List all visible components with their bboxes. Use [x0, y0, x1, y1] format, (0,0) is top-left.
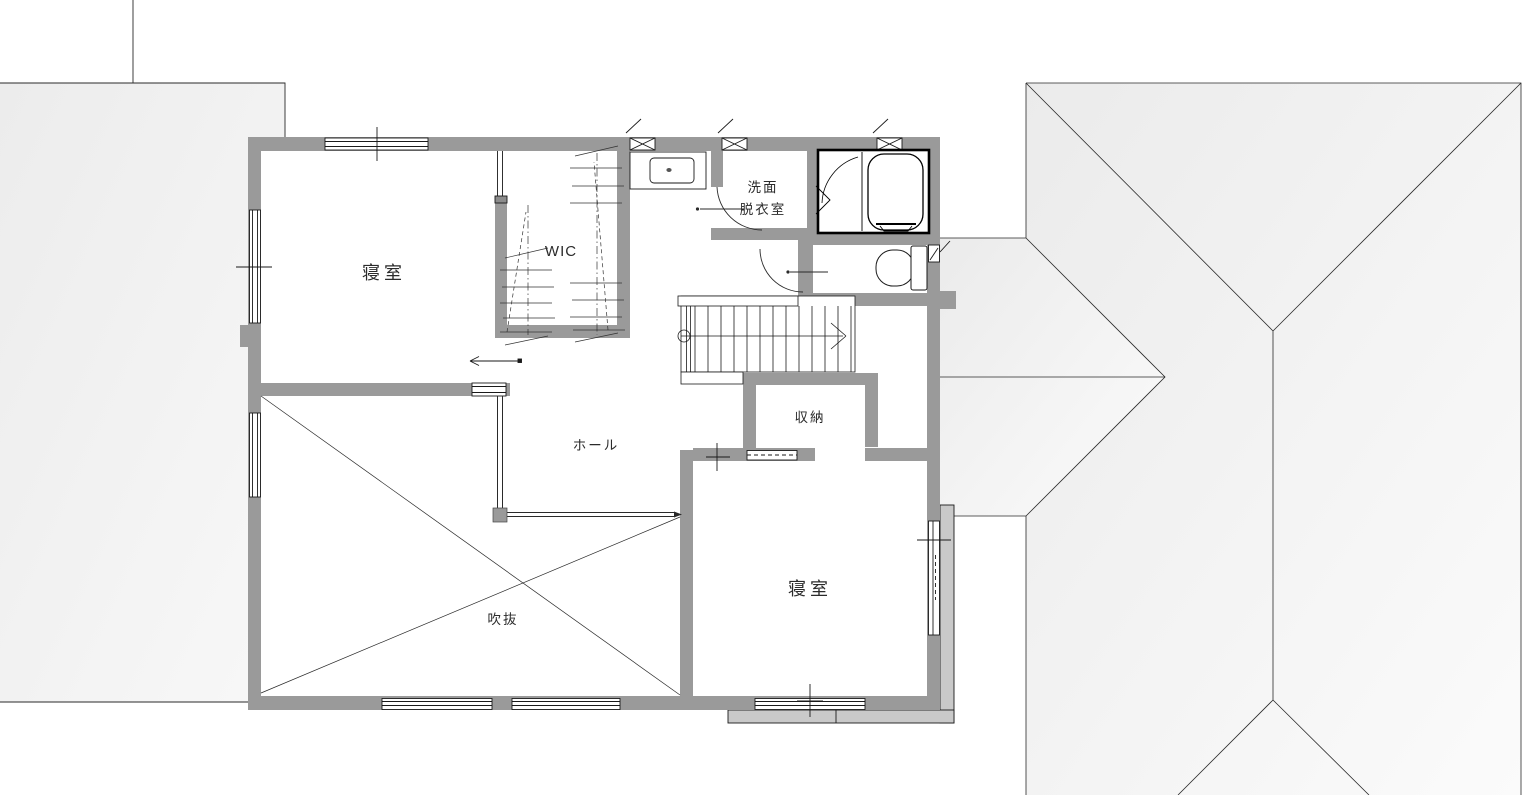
toilet	[876, 246, 927, 290]
right-roof	[940, 83, 1521, 795]
wall-bedroom1-south	[248, 383, 510, 396]
toilet-tank	[911, 246, 927, 290]
stair-lower-landing	[681, 372, 743, 384]
basin-drain	[666, 168, 671, 172]
wall-wic-east	[617, 151, 630, 338]
wall-pier-left	[240, 325, 255, 347]
window-void-south-1	[382, 699, 492, 710]
railing-post	[493, 508, 507, 522]
staircase	[678, 296, 855, 384]
toilet-bowl	[876, 250, 914, 286]
label-bedroom1: 寝室	[362, 263, 406, 283]
window-fix-3	[873, 119, 902, 150]
wall-bedroom2-north-b	[865, 448, 940, 461]
label-void: 吹抜	[488, 612, 519, 627]
window-void-south-2	[512, 699, 620, 710]
floor-plan-drawing: 寝室 WIC 洗面 脱衣室 ホール 収納 吹抜 寝室	[0, 0, 1529, 795]
window-fix-2	[718, 119, 747, 150]
balcony-bottom-strip	[728, 710, 954, 723]
floor-plan-canvas: 寝室 WIC 洗面 脱衣室 ホール 収納 吹抜 寝室	[0, 0, 1529, 795]
label-washroom-line2: 脱衣室	[740, 201, 787, 217]
label-wic: WIC	[545, 243, 577, 260]
left-roof	[0, 0, 285, 702]
window-void-west	[250, 413, 261, 497]
wall-toilet-west	[798, 240, 813, 293]
wall-bedroom2-west	[680, 450, 693, 697]
label-washroom-line1: 洗面	[748, 180, 779, 195]
label-hall: ホール	[573, 438, 620, 453]
label-bedroom2: 寝室	[788, 579, 832, 599]
window-fix-1	[626, 119, 655, 150]
balcony-right-strip	[940, 505, 954, 723]
bathroom	[816, 150, 929, 233]
wall-wic-south	[495, 325, 630, 338]
washbasin	[630, 152, 706, 189]
wall-pier-right	[940, 291, 956, 309]
wall-washroom-stub	[711, 151, 723, 187]
wall-closet-east	[865, 385, 878, 447]
stair-header	[678, 296, 798, 306]
label-closet: 収納	[795, 410, 826, 425]
wall-closet-north	[743, 373, 878, 385]
